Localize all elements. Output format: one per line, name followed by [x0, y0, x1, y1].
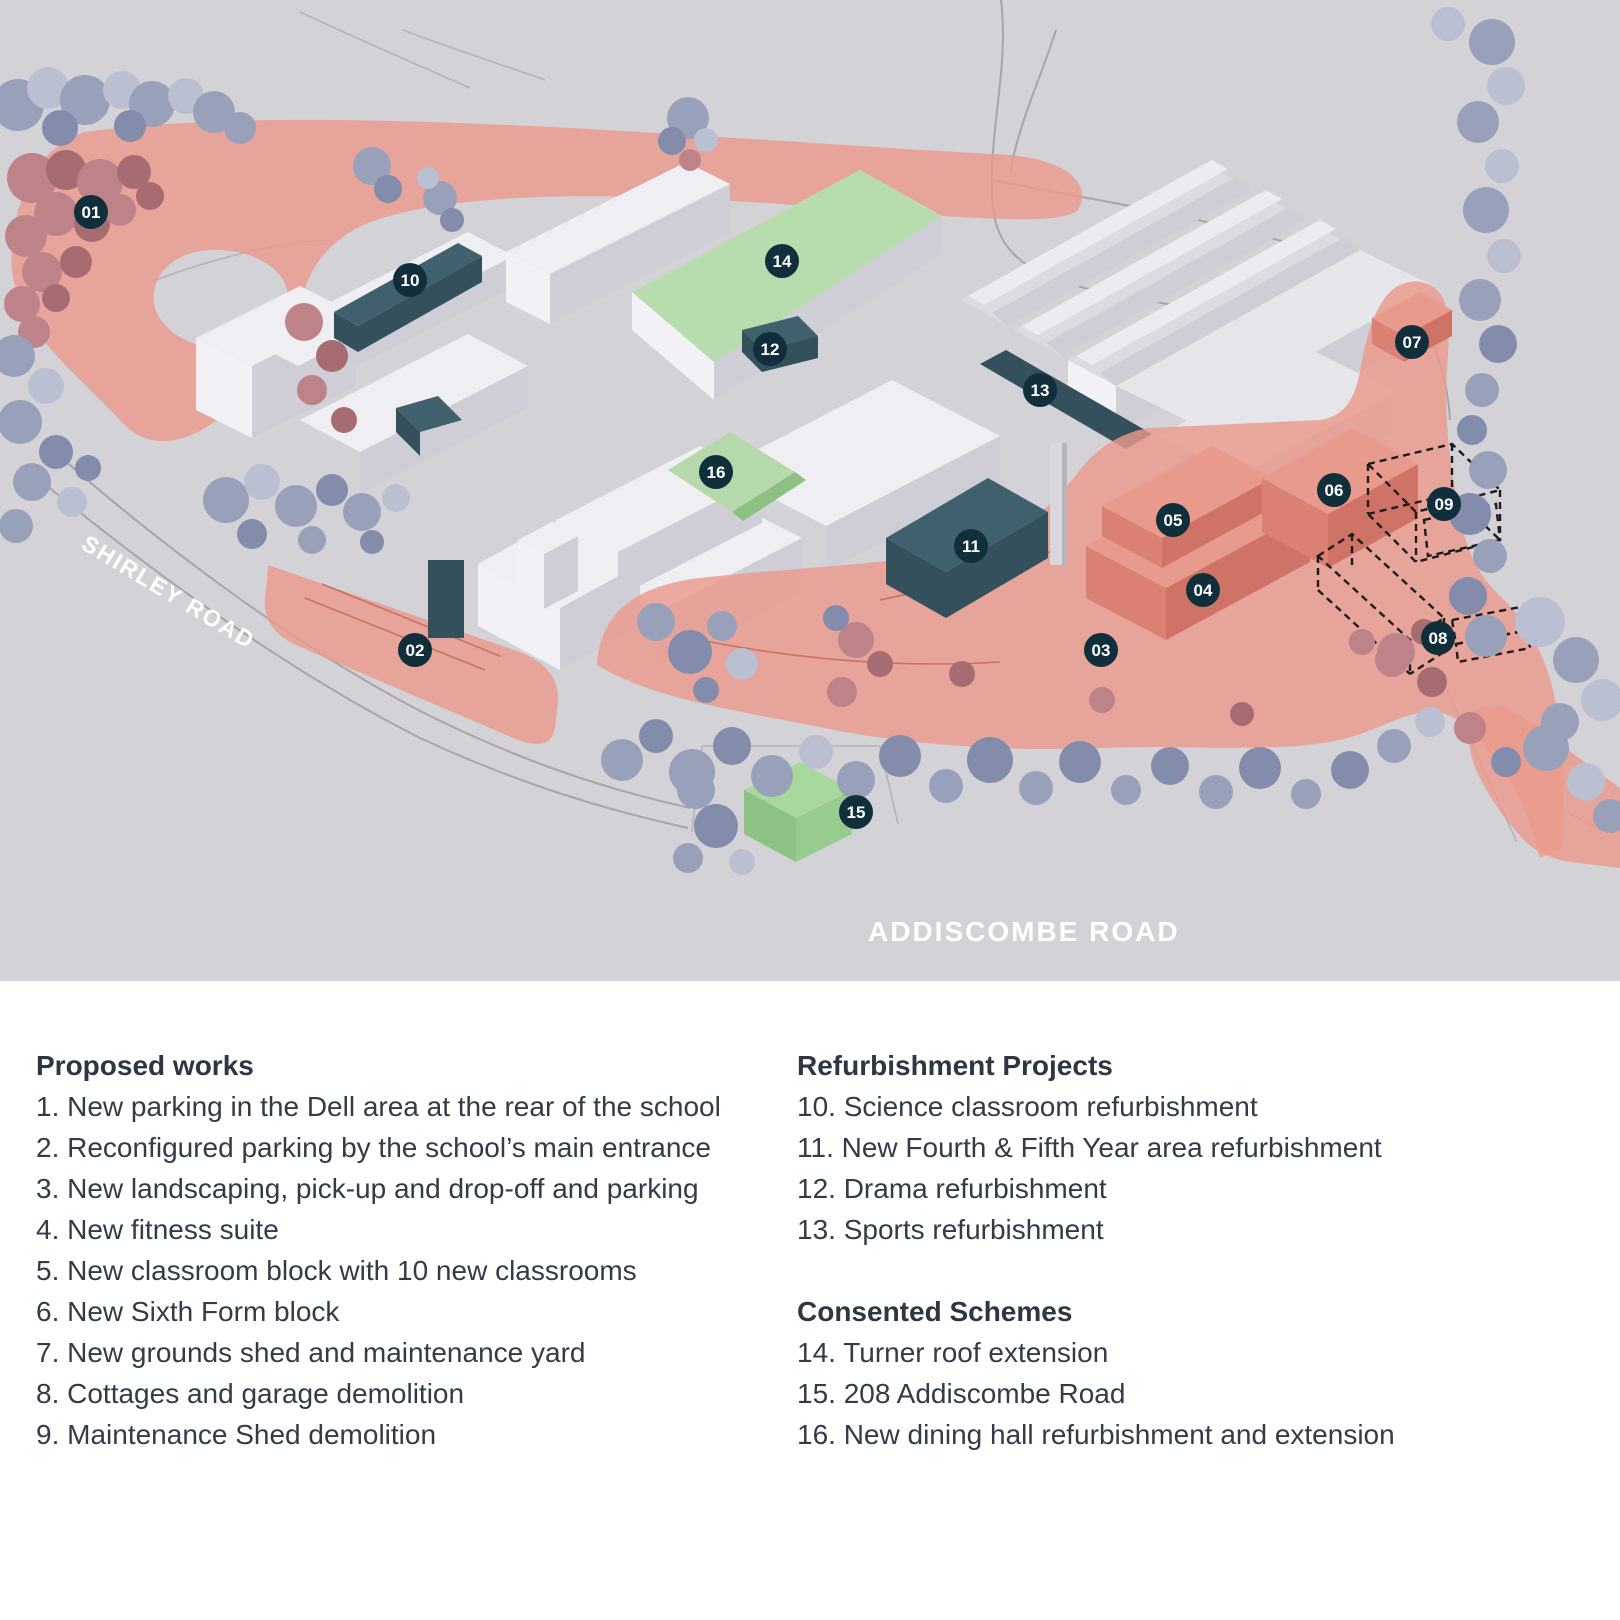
legend-item-16: 16. New dining hall refurbishment and ex… [797, 1414, 1620, 1455]
legend-item-6: 6. New Sixth Form block [36, 1291, 797, 1332]
legend-title-refurbishment-projects: Refurbishment Projects [797, 1045, 1620, 1086]
legend-column-proposed: Proposed works 1. New parking in the Del… [0, 1045, 797, 1455]
legend-item-9: 9. Maintenance Shed demolition [36, 1414, 797, 1455]
legend-item-13: 13. Sports refurbishment [797, 1209, 1620, 1250]
legend-item-1: 1. New parking in the Dell area at the r… [36, 1086, 797, 1127]
site-plan-page: SHIRLEY ROAD ADDISCOMBE ROAD 01 02 03 04… [0, 0, 1620, 1620]
svg-text:07: 07 [1403, 333, 1422, 352]
svg-text:10: 10 [401, 271, 420, 290]
road-label-addiscombe: ADDISCOMBE ROAD [868, 916, 1180, 947]
svg-text:13: 13 [1031, 381, 1050, 400]
legend-title-consented-schemes: Consented Schemes [797, 1291, 1620, 1332]
legend-item-15: 15. 208 Addiscombe Road [797, 1373, 1620, 1414]
svg-text:11: 11 [962, 537, 980, 556]
marker-14: 14 [765, 244, 799, 278]
svg-text:15: 15 [847, 803, 866, 822]
marker-05: 05 [1156, 503, 1190, 537]
svg-text:03: 03 [1092, 641, 1111, 660]
marker-07: 07 [1395, 325, 1429, 359]
legend-item-10: 10. Science classroom refurbishment [797, 1086, 1620, 1127]
marker-15: 15 [839, 795, 873, 829]
svg-text:05: 05 [1164, 511, 1183, 530]
legend-item-14: 14. Turner roof extension [797, 1332, 1620, 1373]
legend: Proposed works 1. New parking in the Del… [0, 981, 1620, 1455]
map-canvas: SHIRLEY ROAD ADDISCOMBE ROAD 01 02 03 04… [0, 0, 1620, 981]
marker-10: 10 [393, 263, 427, 297]
marker-01: 01 [74, 195, 108, 229]
svg-text:06: 06 [1325, 481, 1344, 500]
legend-item-8: 8. Cottages and garage demolition [36, 1373, 797, 1414]
legend-title-proposed-works: Proposed works [36, 1045, 797, 1086]
marker-09: 09 [1427, 487, 1461, 521]
refurb-facade [428, 560, 464, 638]
legend-item-3: 3. New landscaping, pick-up and drop-off… [36, 1168, 797, 1209]
svg-text:14: 14 [773, 252, 792, 271]
marker-11: 11 [954, 529, 988, 563]
legend-item-5: 5. New classroom block with 10 new class… [36, 1250, 797, 1291]
legend-column-refurbishment: Refurbishment Projects 10. Science class… [797, 1045, 1620, 1455]
marker-04: 04 [1186, 573, 1220, 607]
marker-03: 03 [1084, 633, 1118, 667]
legend-spacer [797, 1250, 1620, 1291]
legend-item-11: 11. New Fourth & Fifth Year area refurbi… [797, 1127, 1620, 1168]
svg-text:01: 01 [82, 203, 101, 222]
marker-02: 02 [398, 633, 432, 667]
site-plan-map: SHIRLEY ROAD ADDISCOMBE ROAD 01 02 03 04… [0, 0, 1620, 981]
svg-text:02: 02 [406, 641, 425, 660]
svg-text:04: 04 [1194, 581, 1213, 600]
svg-text:09: 09 [1435, 495, 1454, 514]
svg-text:16: 16 [707, 463, 726, 482]
marker-12: 12 [753, 332, 787, 366]
marker-13: 13 [1023, 373, 1057, 407]
marker-16: 16 [699, 455, 733, 489]
marker-06: 06 [1317, 473, 1351, 507]
legend-item-4: 4. New fitness suite [36, 1209, 797, 1250]
legend-item-2: 2. Reconfigured parking by the school’s … [36, 1127, 797, 1168]
svg-text:12: 12 [761, 340, 780, 359]
svg-text:08: 08 [1429, 629, 1448, 648]
legend-item-12: 12. Drama refurbishment [797, 1168, 1620, 1209]
legend-item-7: 7. New grounds shed and maintenance yard [36, 1332, 797, 1373]
marker-08: 08 [1421, 621, 1455, 655]
